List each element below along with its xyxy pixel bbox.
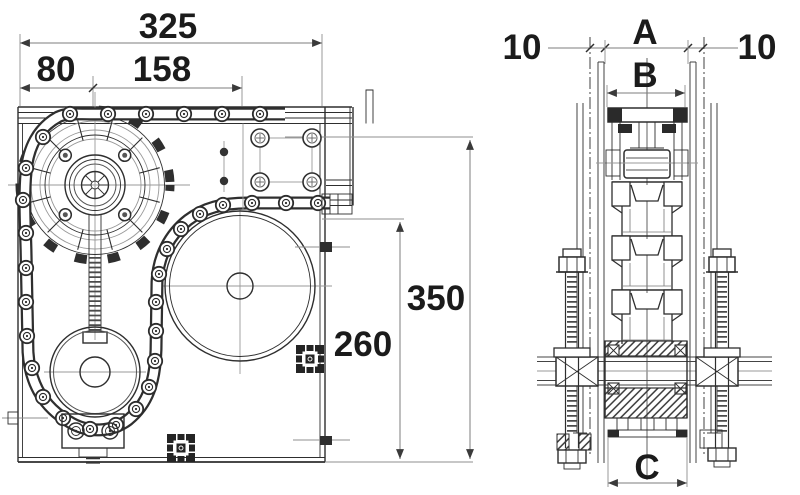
dim-label-left-gap: 10 <box>503 28 542 67</box>
dim-label-overall-height: 350 <box>407 279 465 318</box>
rail-bracket <box>366 90 373 124</box>
stud-pin <box>220 148 228 156</box>
side-view: A 10 10 B C <box>503 13 777 487</box>
dimension-inner-height: 260 <box>322 219 404 459</box>
dimension-hub-width: C <box>608 437 687 487</box>
dim-label-hub-width: C <box>634 448 659 487</box>
housing-frame <box>18 107 473 462</box>
dim-label-mid-width: 158 <box>133 50 191 89</box>
front-view: 325 80 158 350 260 <box>2 7 473 464</box>
bearing-block-right <box>696 357 738 386</box>
dim-label-overall-width: 325 <box>139 7 197 46</box>
fastener-symbol <box>296 345 324 373</box>
dim-label-outer-width: A <box>632 13 657 52</box>
dimension-inner-width: B <box>607 56 685 107</box>
dim-label-right-gap: 10 <box>738 28 777 67</box>
stud-pin <box>220 177 228 185</box>
dimension-overall-height: 350 <box>407 140 470 459</box>
bearing-block-left <box>556 357 598 386</box>
dim-label-inner-height: 260 <box>334 325 392 364</box>
dimension-left-offset: 80 158 <box>20 50 242 106</box>
technical-drawing: 325 80 158 350 260 <box>0 0 800 495</box>
front-dimensions: 325 80 158 350 260 <box>20 7 470 459</box>
dim-label-inner-width: B <box>632 56 657 95</box>
dim-label-left-offset: 80 <box>37 50 76 89</box>
fastener-symbol <box>167 434 195 462</box>
